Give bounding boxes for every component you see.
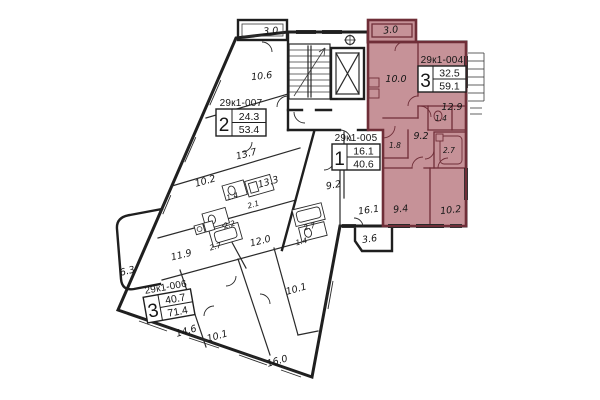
total-area: 59.1	[439, 81, 460, 93]
exterior-ladder	[468, 53, 484, 114]
room-area-label: 1.4	[435, 114, 447, 123]
apartment-id: 29к1-005	[335, 133, 378, 144]
apartment-006-header: 29к1-006 3 40.7 71.4	[141, 278, 195, 323]
room-area-label: 10.6	[251, 70, 273, 83]
room-area-label: 9.4	[393, 203, 409, 216]
room-area-label: 10.2	[440, 204, 462, 217]
room-area-label: 3.0	[263, 25, 279, 37]
apartment-id: 29к1-004	[421, 55, 464, 66]
rooms-count: 2	[219, 115, 230, 136]
room-area-label: 9.2	[413, 131, 428, 142]
room-area-label: 1.8	[389, 141, 401, 150]
living-area: 16.1	[353, 146, 374, 158]
floor-plan-page: 29к1-007 2 24.3 53.4 29к1-004 3 32.5 59.…	[0, 0, 600, 400]
room-area-label: 10.0	[385, 74, 406, 85]
apartment-004-header: 29к1-004 3 32.5 59.1	[418, 55, 466, 93]
rooms-count: 1	[334, 149, 345, 170]
room-area-label: 12.9	[441, 102, 462, 113]
total-area: 53.4	[239, 124, 260, 136]
apartment-id: 29к1-007	[220, 98, 263, 109]
apartment-005-header: 29к1-005 1 16.1 40.6	[332, 133, 380, 171]
floor-plan: 29к1-007 2 24.3 53.4 29к1-004 3 32.5 59.…	[0, 0, 600, 400]
apartment-007-header: 29к1-007 2 24.3 53.4	[216, 98, 266, 136]
room-area-label: 3.0	[383, 24, 399, 37]
living-area: 24.3	[239, 111, 260, 123]
room-area-label: 2.7	[443, 146, 455, 155]
total-area: 40.6	[353, 159, 374, 171]
room-area-label: 3.6	[361, 233, 377, 246]
living-area: 32.5	[439, 68, 460, 80]
rooms-count: 3	[420, 71, 431, 92]
